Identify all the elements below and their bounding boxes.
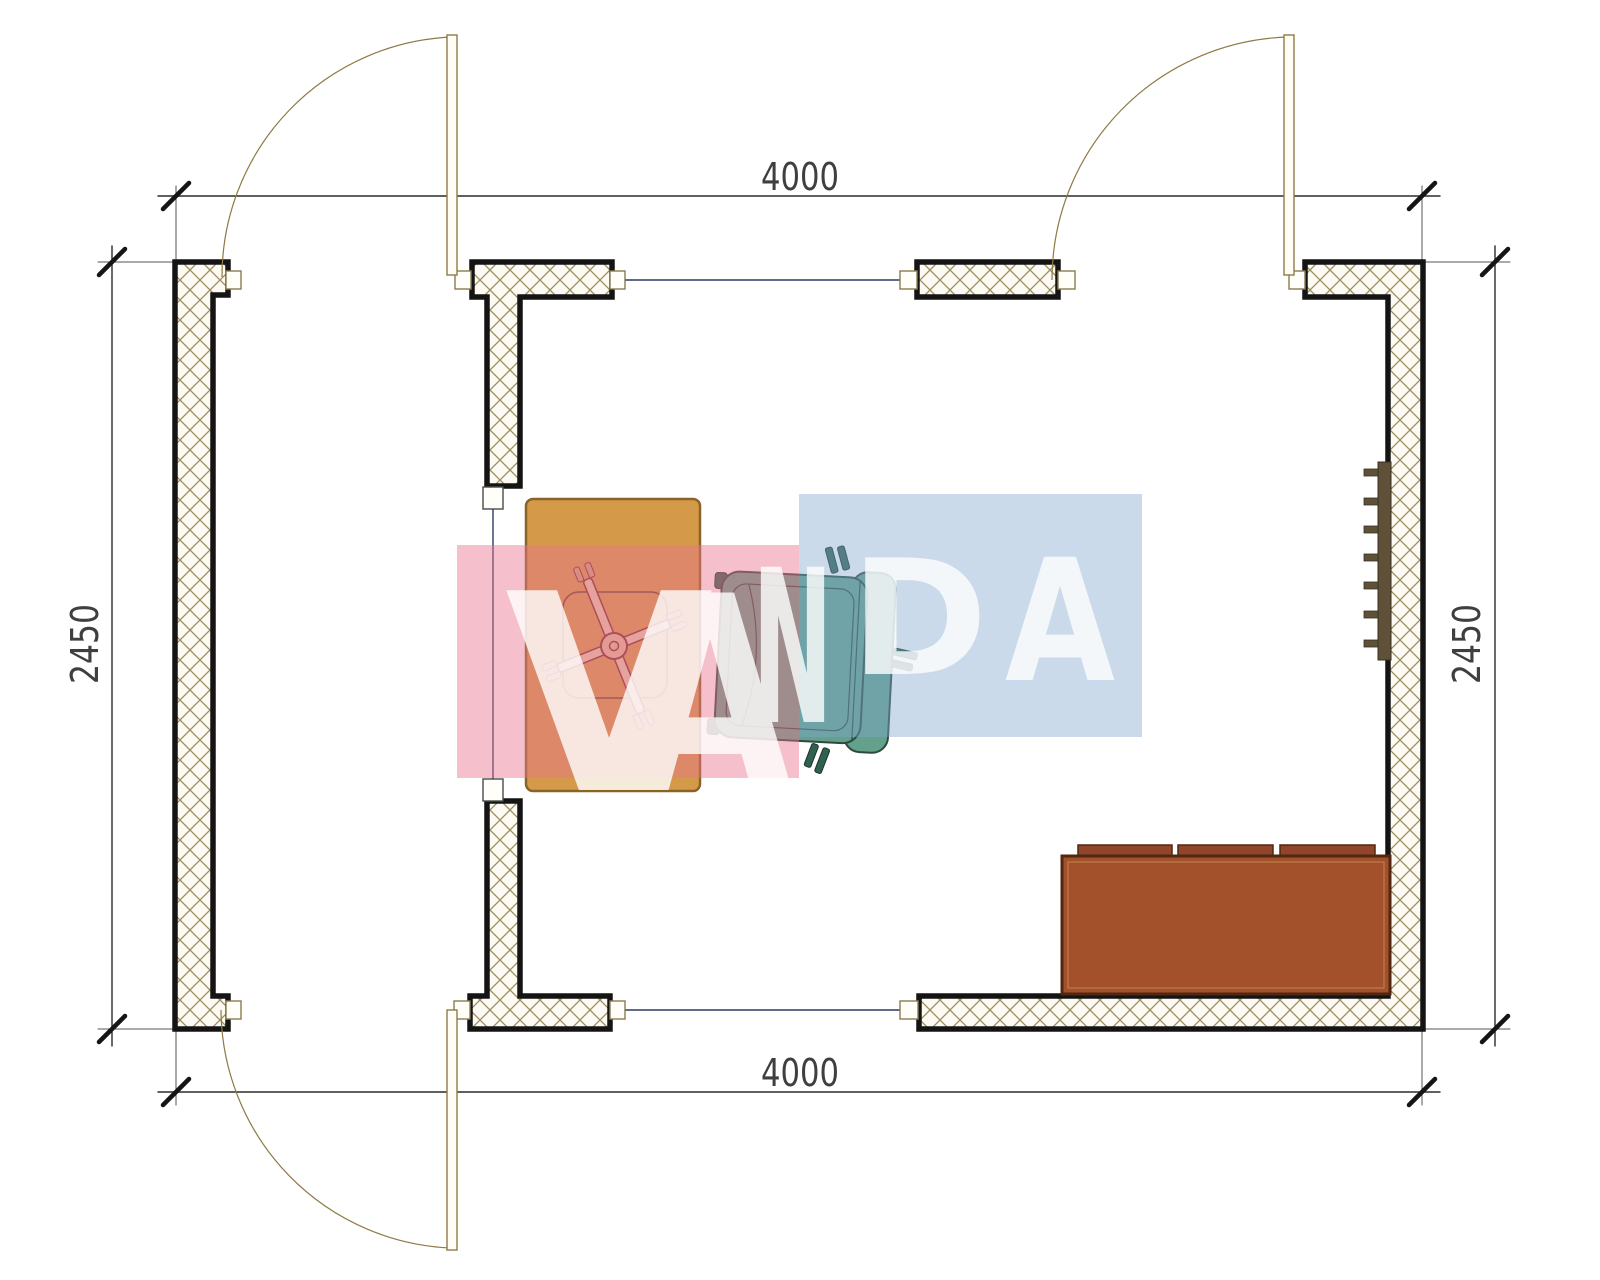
dimension-bottom: 4000 — [158, 1029, 1440, 1105]
dimension-label-right: 2450 — [1445, 604, 1489, 684]
dimension-right: 2450 — [1423, 246, 1510, 1046]
wall-top-middle — [917, 262, 1058, 297]
sofa-body — [1062, 856, 1390, 994]
dimension-label-top: 4000 — [761, 155, 839, 199]
partition-jamb — [483, 487, 503, 509]
watermark-letter-a2: A — [1005, 523, 1115, 720]
shelf-board — [1378, 462, 1391, 660]
watermark-letter-d: D — [850, 525, 988, 712]
sofa — [1062, 845, 1390, 994]
watermark-letters: V A N D A — [505, 523, 1115, 855]
door-jamb — [610, 1001, 625, 1019]
shelf-bracket — [1364, 526, 1378, 533]
door-jamb — [900, 1001, 918, 1019]
watermark-letter-n: N — [752, 525, 833, 773]
dimension-label-left: 2450 — [63, 604, 107, 684]
door-jamb — [226, 1001, 241, 1019]
door-jamb — [610, 271, 625, 289]
door-jamb — [900, 271, 917, 289]
door-swing-arc-top-left — [222, 37, 452, 277]
door-leaf-bottom — [447, 1010, 457, 1250]
shelf-bracket — [1364, 469, 1378, 476]
floor-plan-svg: 4000 4000 2450 2450 — [0, 0, 1600, 1280]
wall-top-left-tee — [472, 262, 612, 486]
dimension-left: 2450 — [63, 246, 175, 1046]
door-leaf-top-right — [1284, 35, 1294, 275]
shelf — [1364, 462, 1391, 660]
floor-plan-page: 4000 4000 2450 2450 — [0, 0, 1600, 1280]
shelf-bracket — [1364, 640, 1378, 647]
door-jamb — [226, 271, 241, 289]
wall-left — [175, 262, 228, 1029]
dimension-top: 4000 — [158, 155, 1440, 262]
shelf-bracket — [1364, 498, 1378, 505]
shelf-bracket — [1364, 611, 1378, 618]
shelf-bracket — [1364, 554, 1378, 561]
partition-jamb — [483, 779, 503, 801]
door-swing-arc-top-right — [1052, 37, 1289, 280]
door-leaf-top-left — [447, 35, 457, 275]
watermark: V A N D A — [457, 494, 1142, 855]
door-jamb — [1058, 271, 1075, 289]
door-swing-arc-bottom — [221, 1010, 452, 1248]
shelf-bracket — [1364, 582, 1378, 589]
dimension-label-bottom: 4000 — [761, 1051, 839, 1095]
